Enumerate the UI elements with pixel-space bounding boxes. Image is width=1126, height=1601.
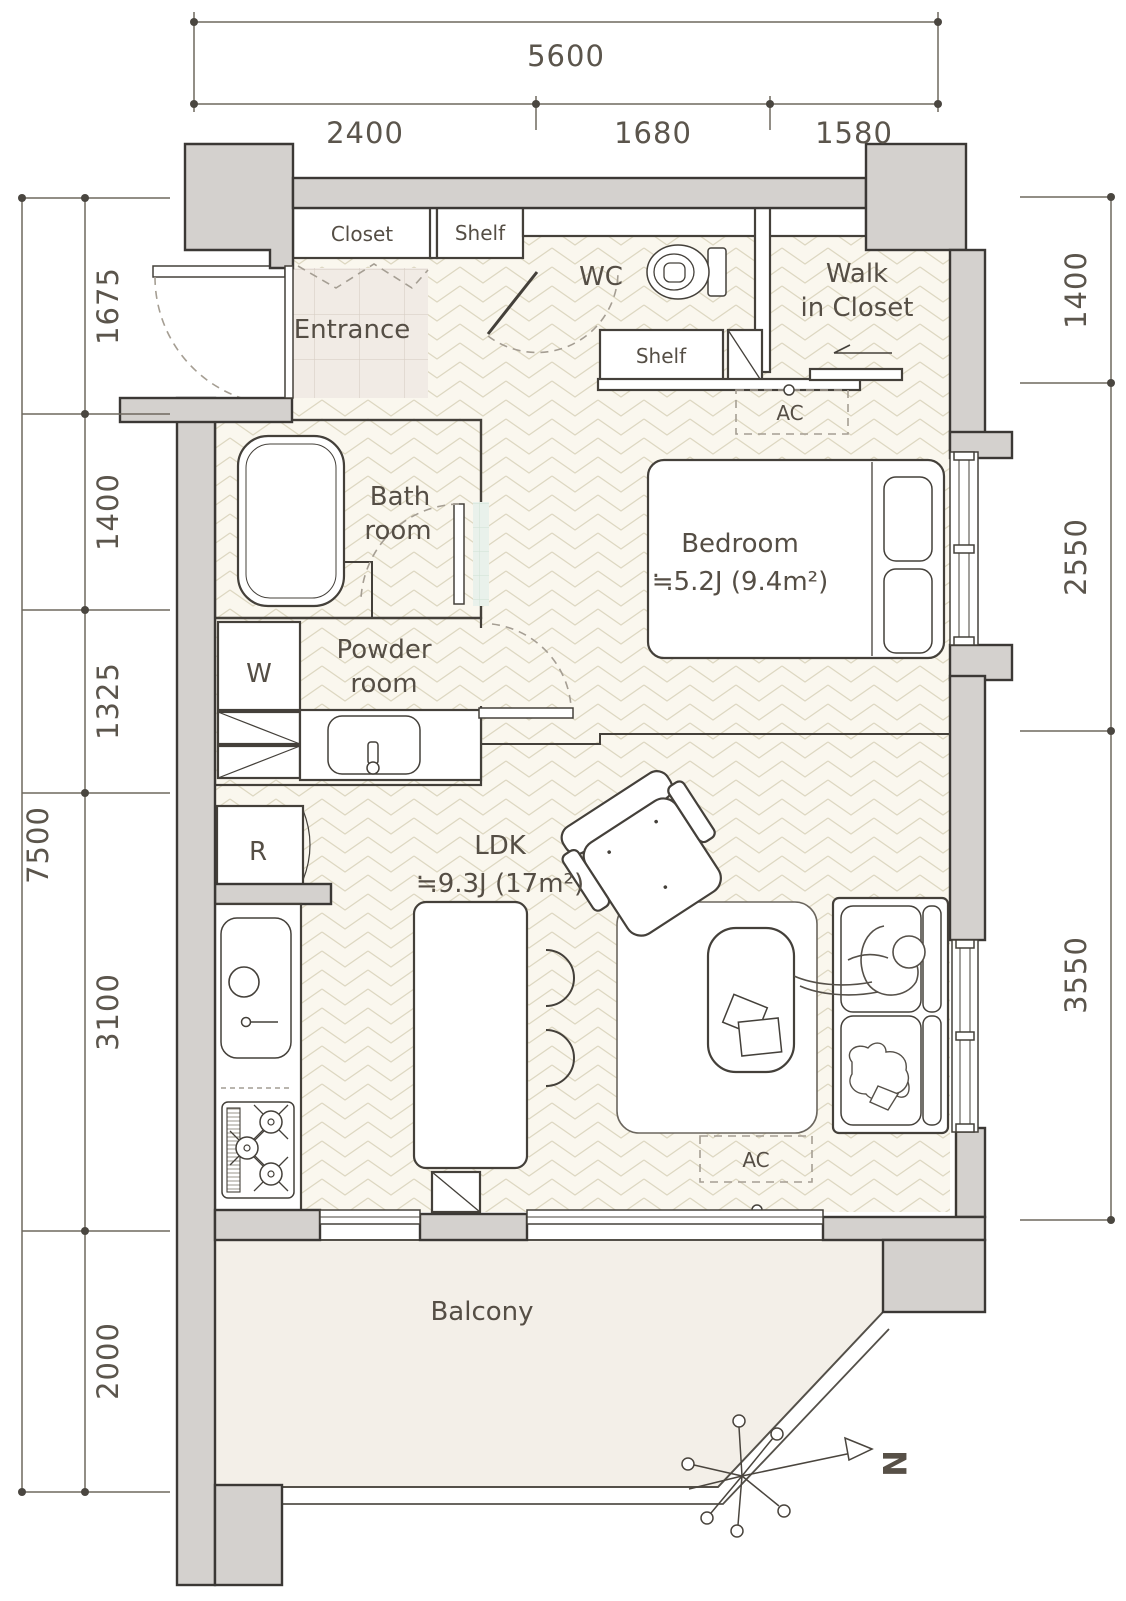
- entrance-label: Entrance: [294, 315, 411, 345]
- ldk-right-window: [952, 940, 978, 1132]
- bed-pillow-1: [884, 477, 932, 561]
- entry-door-leaf: [153, 266, 285, 277]
- counter-return: [215, 884, 331, 904]
- ac-top-label: AC: [776, 401, 803, 425]
- balcony-label: Balcony: [430, 1297, 533, 1327]
- powder-door-leaf: [479, 708, 573, 718]
- wic-label-line2: in Closet: [801, 293, 914, 323]
- wic-label-line1: Walk: [826, 259, 888, 289]
- dim-top-seg3: 1580: [815, 116, 893, 150]
- dim-left-seg2: 1400: [91, 473, 125, 551]
- shelf-wc-label: Shelf: [636, 344, 687, 368]
- bath-door-opening: [473, 502, 489, 606]
- bath-door-leaf: [454, 504, 464, 604]
- closet-label: Closet: [331, 222, 393, 246]
- wall-pier-b: [420, 1214, 527, 1240]
- north-label: N: [875, 1450, 913, 1477]
- ldk-label: LDK: [474, 831, 527, 861]
- kitchen-sink: [221, 918, 291, 1058]
- powder-label-line1: Powder: [336, 635, 431, 665]
- bath-label-line1: Bath: [370, 482, 430, 512]
- toilet-tank: [708, 248, 726, 296]
- dim-top-seg2: 1680: [614, 116, 692, 150]
- dim-right-seg2: 2550: [1059, 518, 1093, 596]
- wc-label: WC: [579, 262, 623, 292]
- wall-bottom-right-band: [823, 1217, 985, 1240]
- dim-top-total: 5600: [527, 39, 605, 73]
- bath-label-line2: room: [364, 516, 431, 546]
- balcony-floor: [215, 1240, 883, 1487]
- fridge-label: R: [249, 837, 267, 867]
- balcony-window-2: [527, 1210, 823, 1224]
- kitchen-faucet-base: [242, 1018, 251, 1027]
- wall-left-fin: [120, 398, 292, 422]
- wall-top: [293, 178, 866, 208]
- dim-top-seg1: 2400: [326, 116, 404, 150]
- dim-left-seg5: 2000: [91, 1322, 125, 1400]
- wall-pier-a: [215, 1210, 320, 1240]
- shelf-top-label: Shelf: [455, 221, 506, 245]
- powder-door-opening: [474, 628, 488, 706]
- floor-plan-drawing: 5600 2400 1680 1580 7500 1675 1400 1325 …: [0, 0, 1126, 1601]
- entrance-side-wall: [285, 266, 293, 398]
- vanity-faucet: [368, 742, 378, 764]
- ac-top-pipe: [784, 385, 794, 395]
- dim-left-seg1: 1675: [91, 267, 125, 345]
- bedroom-label: Bedroom: [681, 529, 799, 559]
- dim-left-seg4: 3100: [91, 973, 125, 1051]
- dim-left-total: 7500: [21, 806, 55, 884]
- bathtub: [238, 436, 344, 606]
- wall-bottom-right-block: [883, 1240, 985, 1312]
- powder-label-line2: room: [350, 669, 417, 699]
- wic-sliding-door: [810, 369, 902, 380]
- wall-column-top-right: [866, 144, 966, 250]
- bed-pillow-2: [884, 569, 932, 653]
- ldk-size-label: ≒9.3J (17m²): [416, 869, 584, 899]
- vanity-faucet-head: [367, 762, 379, 774]
- balcony-window-1: [320, 1210, 420, 1224]
- bedroom-window: [950, 452, 978, 645]
- north-arrow-head: [845, 1438, 872, 1460]
- wall-right-lower: [956, 1128, 985, 1217]
- wall-left: [177, 398, 215, 1585]
- wc-top-wall: [523, 208, 866, 236]
- wall-right-mid: [950, 676, 985, 940]
- dim-right-seg1: 1400: [1059, 251, 1093, 329]
- dining-table: [414, 902, 527, 1168]
- bedroom-size-label: ≒5.2J (9.4m²): [652, 567, 828, 597]
- toilet-bowl: [647, 245, 709, 299]
- wall-right-step-2: [950, 645, 1012, 680]
- washer-label: W: [246, 659, 272, 689]
- wall-bottom-left-block: [215, 1485, 282, 1585]
- floor-plan-page: 5600 2400 1680 1580 7500 1675 1400 1325 …: [0, 0, 1126, 1601]
- dim-right-seg3: 3550: [1059, 936, 1093, 1014]
- wall-column-top-left: [185, 144, 293, 268]
- ac-bottom-label: AC: [742, 1148, 769, 1172]
- wall-right-upper: [950, 250, 985, 450]
- dim-left-seg3: 1325: [91, 662, 125, 740]
